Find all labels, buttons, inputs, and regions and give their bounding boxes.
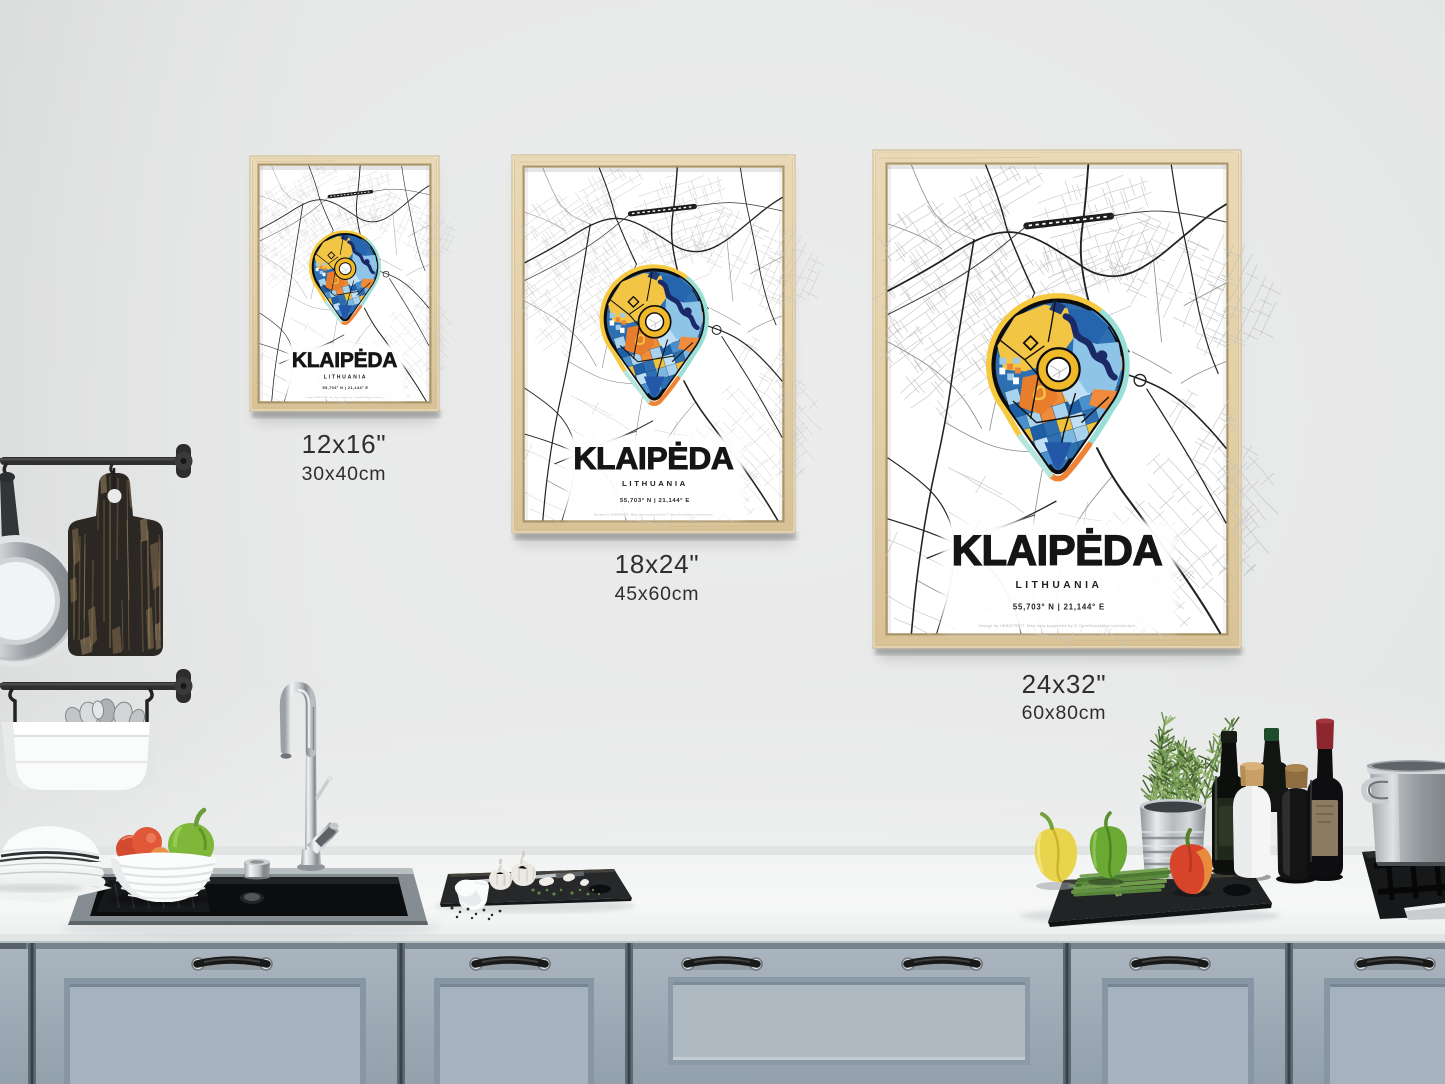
svg-text:24x32": 24x32" xyxy=(1022,669,1107,699)
svg-text:12x16": 12x16" xyxy=(302,429,387,459)
svg-text:45x60cm: 45x60cm xyxy=(615,583,700,605)
svg-text:18x24": 18x24" xyxy=(615,549,700,579)
svg-text:60x80cm: 60x80cm xyxy=(1022,702,1107,724)
svg-text:30x40cm: 30x40cm xyxy=(302,463,387,485)
